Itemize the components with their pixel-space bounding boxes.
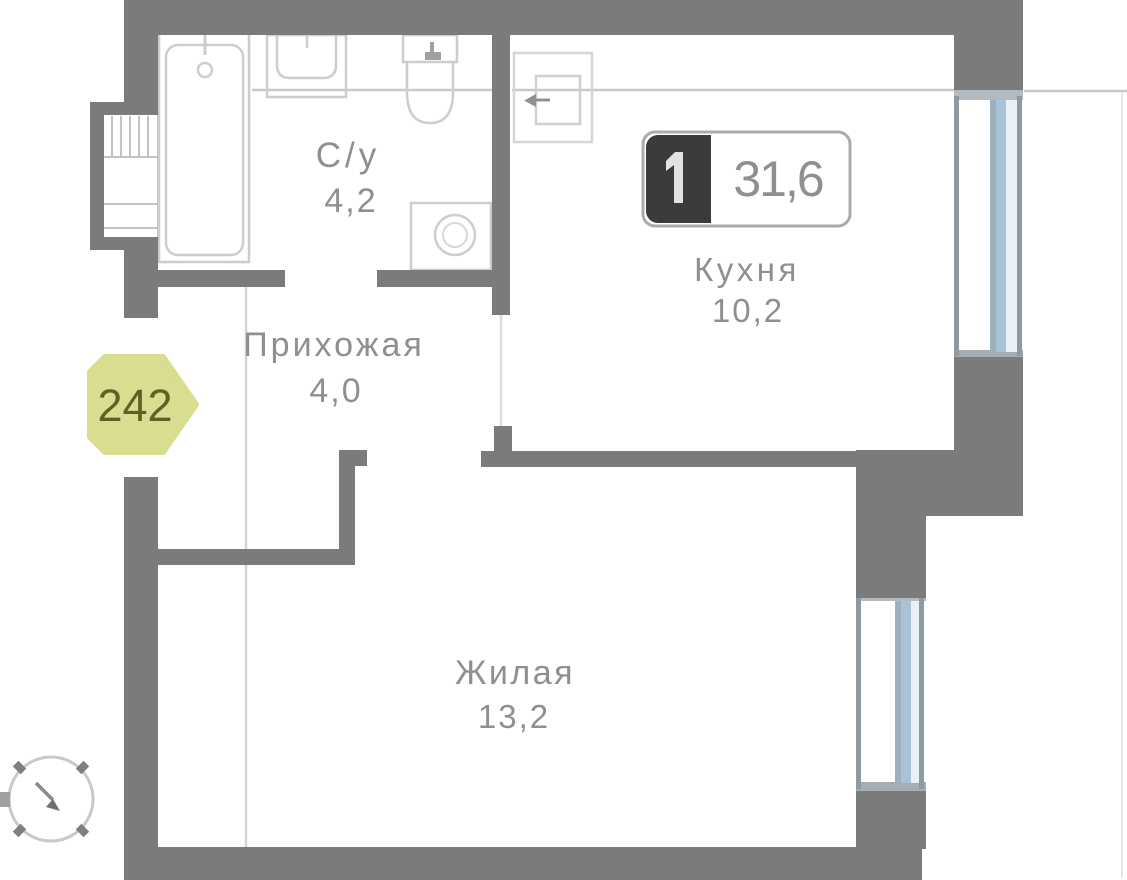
svg-text:С/у: С/у xyxy=(316,136,381,175)
svg-text:Прихожая: Прихожая xyxy=(243,326,425,364)
svg-text:Жилая: Жилая xyxy=(455,654,575,692)
svg-text:4,0: 4,0 xyxy=(309,372,362,410)
svg-text:31,6: 31,6 xyxy=(733,151,823,207)
svg-text:13,2: 13,2 xyxy=(478,698,550,735)
svg-text:10,2: 10,2 xyxy=(712,292,784,329)
svg-text:242: 242 xyxy=(97,380,172,431)
svg-text:Кухня: Кухня xyxy=(694,251,800,288)
svg-text:4,2: 4,2 xyxy=(324,182,377,220)
